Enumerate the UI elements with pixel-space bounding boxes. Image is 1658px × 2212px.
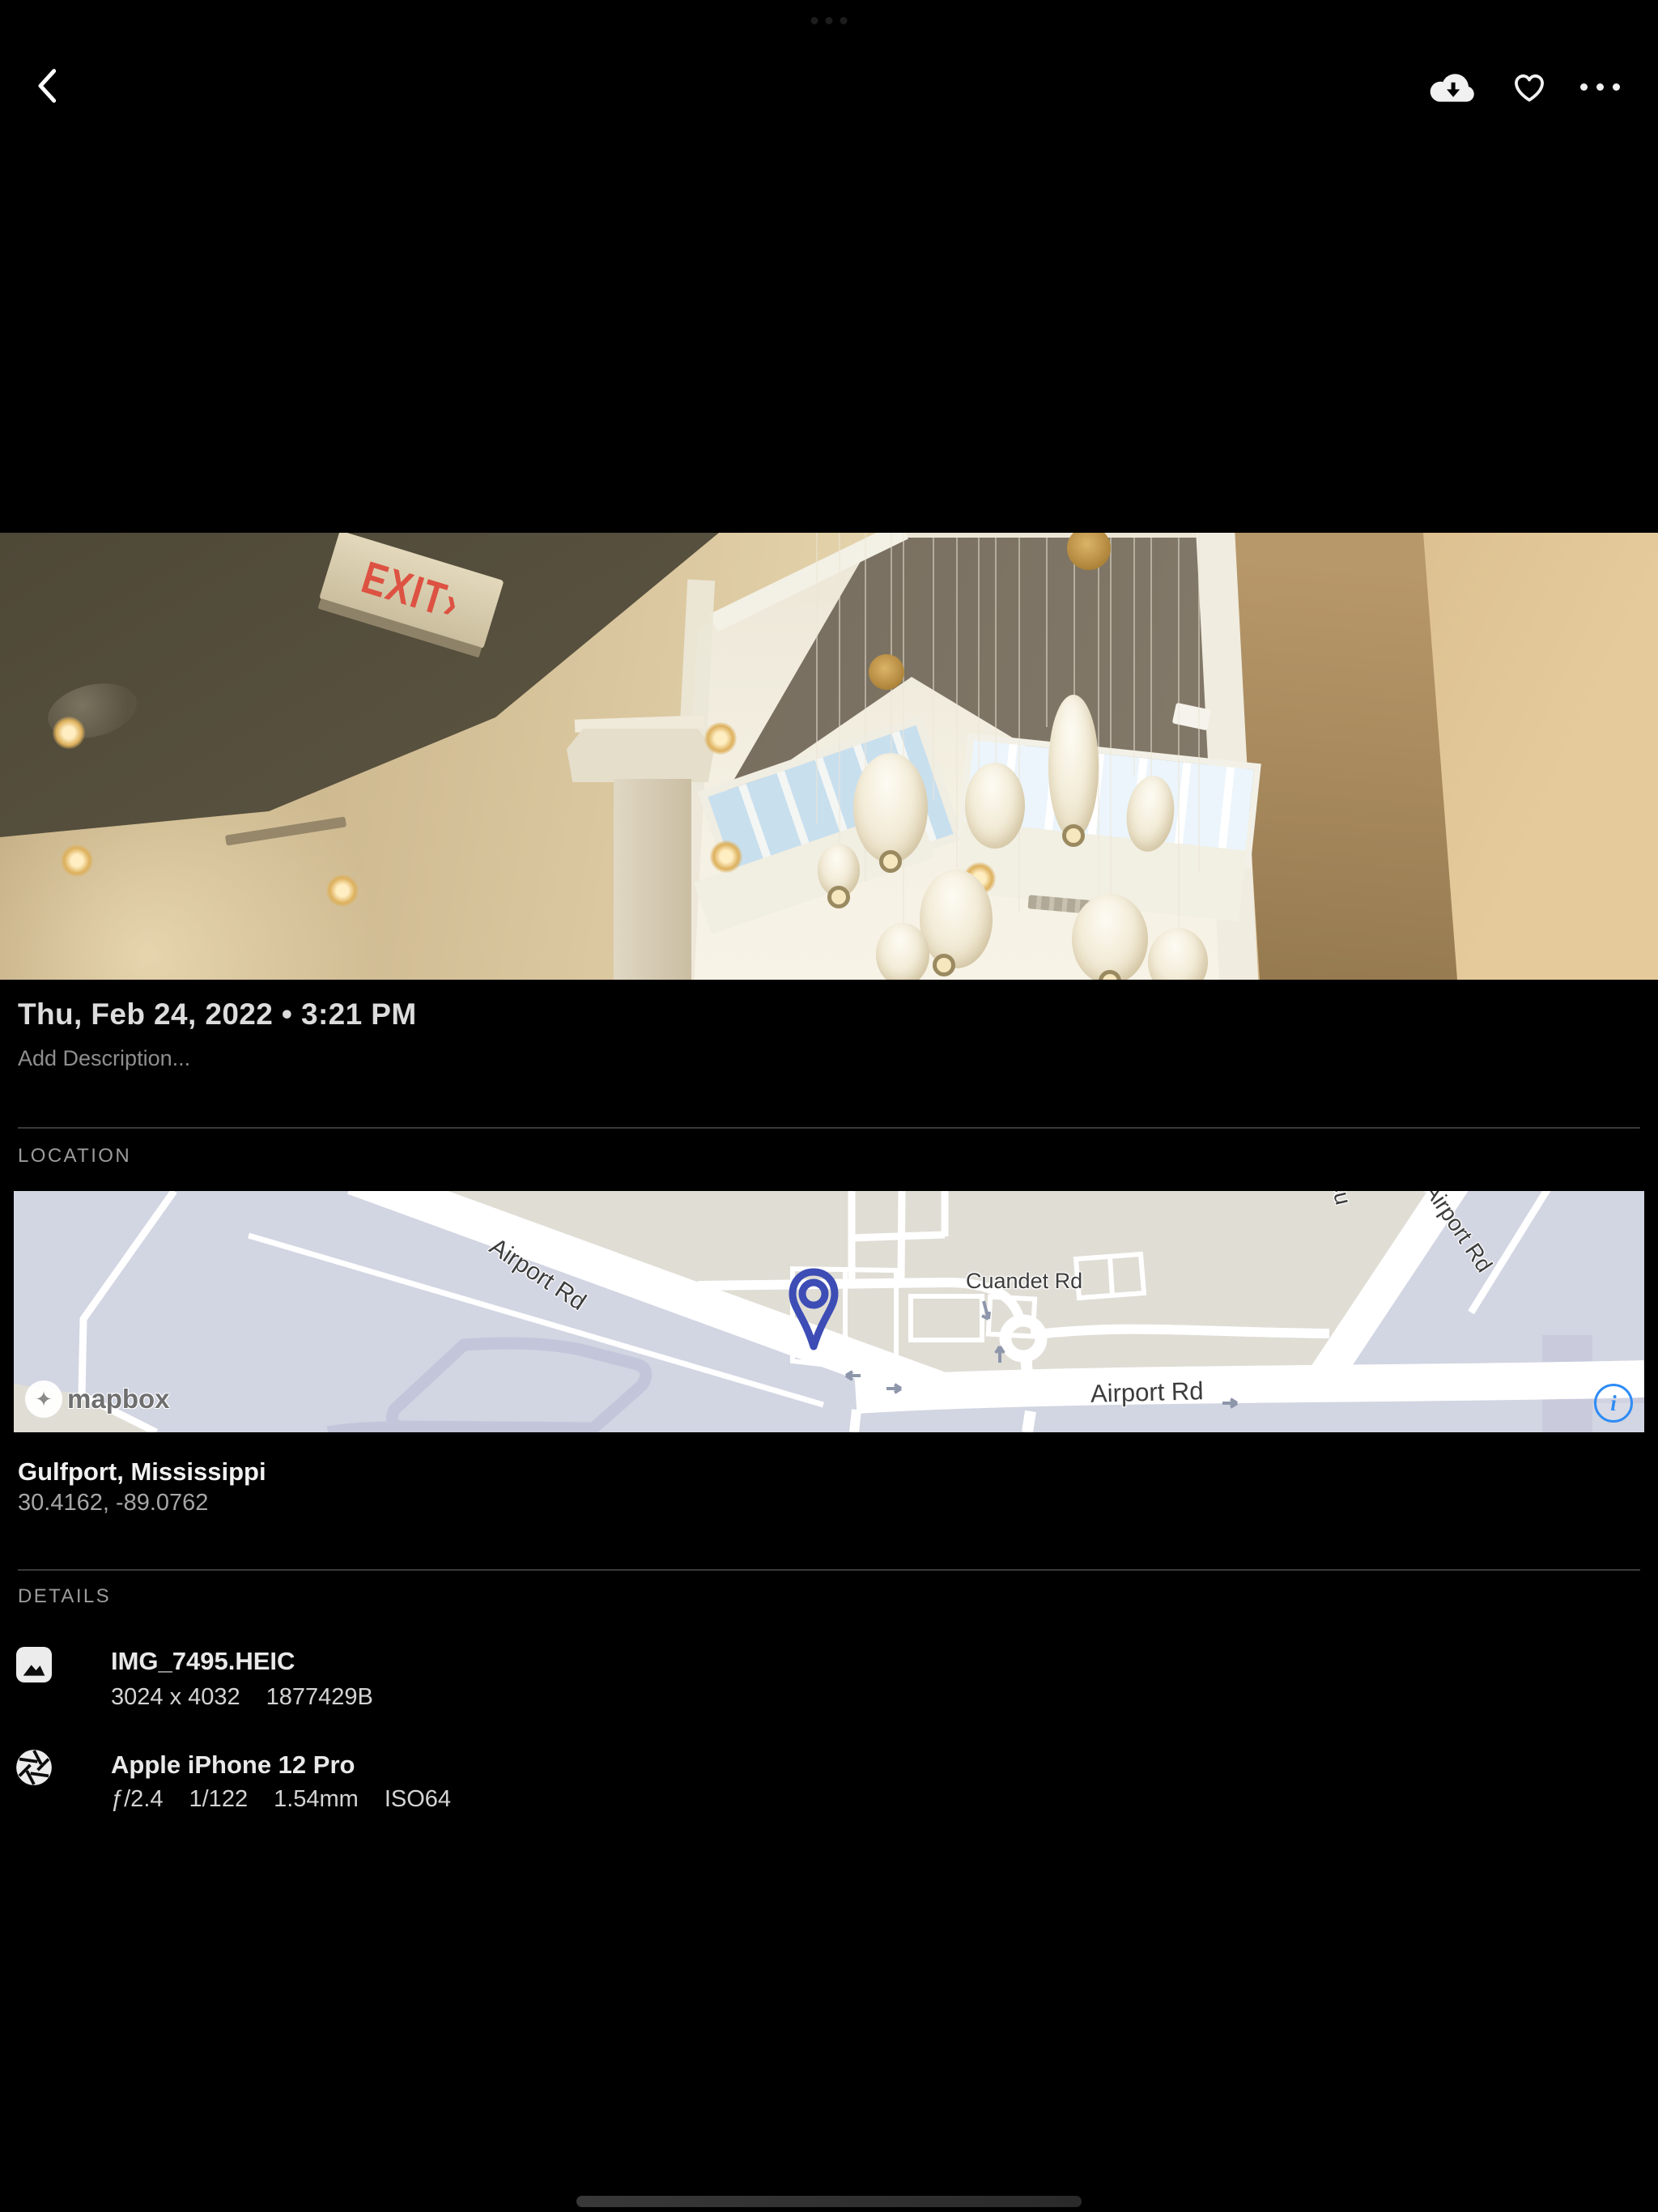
favorite-icon	[1510, 68, 1549, 104]
column-shaft	[614, 779, 691, 980]
aperture-icon	[14, 1747, 54, 1788]
lamp-opening	[879, 850, 902, 873]
lamp-cable	[1178, 533, 1180, 928]
file-dimensions: 3024 x 4032	[111, 1684, 240, 1710]
mapbox-wordmark: mapbox	[67, 1384, 170, 1414]
location-place-name: Gulfport, Mississippi	[18, 1457, 266, 1487]
mapbox-attribution[interactable]: ✦ mapbox	[25, 1380, 170, 1418]
ceiling-light-disc	[869, 654, 904, 690]
lamp-cable	[816, 533, 818, 824]
description-input[interactable]: Add Description...	[18, 1046, 190, 1071]
column-capital	[567, 729, 714, 782]
pendant-lamp	[876, 923, 929, 980]
map-info-button[interactable]: i	[1594, 1384, 1633, 1423]
map-pin-icon	[788, 1267, 840, 1355]
camera-shutter: 1/122	[189, 1786, 249, 1812]
recessed-light	[53, 717, 85, 749]
recessed-light	[704, 722, 737, 755]
divider	[18, 1569, 1640, 1571]
file-meta: 3024 x 40321877429B	[111, 1684, 399, 1711]
file-name: IMG_7495.HEIC	[111, 1647, 295, 1676]
location-section-label: LOCATION	[18, 1145, 131, 1168]
camera-focal: 1.54mm	[274, 1786, 359, 1812]
camera-iso: ISO64	[385, 1786, 451, 1812]
lamp-cable	[891, 533, 892, 753]
lamp-cable	[1110, 533, 1112, 894]
lamp-cable	[903, 533, 904, 923]
pendant-lamp	[920, 870, 993, 968]
lamp-cable	[956, 533, 958, 870]
lamp-cable	[1018, 533, 1020, 913]
details-section-label: DETAILS	[18, 1585, 111, 1608]
cloud-download-icon	[1427, 68, 1474, 105]
lamp-cable	[1098, 533, 1099, 899]
pendant-lamp	[1072, 894, 1148, 980]
favorite-button[interactable]	[1509, 66, 1550, 105]
pendant-lamp	[965, 763, 1025, 849]
info-icon: i	[1610, 1391, 1617, 1416]
photo-viewer[interactable]: EXIT›	[0, 533, 1658, 980]
camera-meta: ƒ/2.41/1221.54mmISO64	[111, 1786, 477, 1813]
lamp-cable	[978, 533, 980, 776]
multitask-indicator-dots	[811, 17, 848, 24]
photo-datetime: Thu, Feb 24, 2022 • 3:21 PM	[18, 998, 417, 1032]
back-icon	[32, 65, 65, 107]
location-coordinates: 30.4162, -89.0762	[18, 1490, 208, 1516]
divider	[18, 1127, 1640, 1129]
lamp-opening	[1062, 824, 1085, 847]
more-options-button[interactable]	[1580, 78, 1634, 96]
lamp-cable	[995, 533, 997, 763]
camera-aperture: ƒ/2.4	[111, 1786, 164, 1812]
lamp-cable	[1133, 533, 1135, 776]
camera-name: Apple iPhone 12 Pro	[111, 1750, 355, 1780]
location-map[interactable]: Airport Rd Cuandet Rd Airport Rd Airport…	[14, 1191, 1644, 1432]
more-icon	[1580, 83, 1588, 91]
recessed-light	[326, 874, 359, 907]
recessed-light	[710, 840, 742, 873]
lamp-opening	[933, 954, 955, 976]
lamp-cable	[1198, 533, 1200, 873]
pendant-lamp	[1048, 695, 1099, 839]
pendant-lamp	[853, 753, 928, 863]
lamp-cable	[1150, 533, 1152, 776]
home-indicator[interactable]	[576, 2196, 1082, 2207]
mapbox-icon: ✦	[25, 1380, 62, 1418]
file-size: 1877429B	[266, 1684, 373, 1710]
image-file-icon	[16, 1647, 52, 1682]
lamp-cable	[933, 533, 934, 800]
lamp-opening	[827, 886, 850, 908]
back-button[interactable]	[29, 62, 68, 110]
road-label-airport-south: Airport Rd	[1090, 1376, 1204, 1409]
recessed-light	[61, 844, 93, 877]
lamp-cable	[839, 533, 840, 844]
photo-detail-screen: EXIT› Thu, Feb 24, 2022 • 3:21 PM Add De…	[0, 0, 1658, 2212]
road-label-cuandet: Cuandet Rd	[966, 1269, 1082, 1294]
lamp-cable	[1046, 533, 1048, 727]
download-button[interactable]	[1426, 66, 1475, 107]
